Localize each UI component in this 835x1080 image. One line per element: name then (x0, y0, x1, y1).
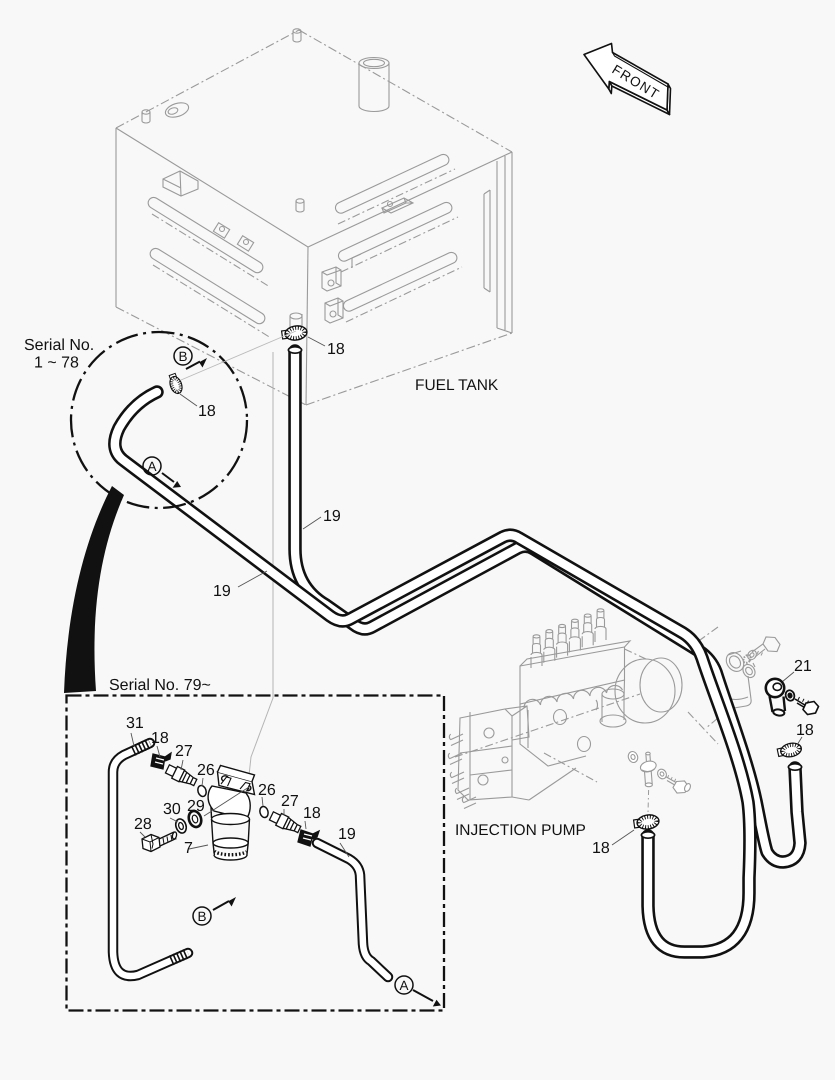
svg-text:26: 26 (197, 762, 215, 779)
svg-text:18: 18 (796, 722, 814, 739)
svg-text:B: B (178, 349, 187, 364)
svg-text:21: 21 (794, 658, 812, 675)
svg-text:19: 19 (338, 826, 356, 843)
svg-text:INJECTION PUMP: INJECTION PUMP (455, 822, 586, 839)
svg-text:27: 27 (175, 743, 193, 760)
svg-text:29: 29 (187, 798, 205, 815)
svg-text:A: A (147, 459, 156, 474)
svg-text:1 ~ 78: 1 ~ 78 (34, 355, 79, 372)
svg-text:FUEL TANK: FUEL TANK (415, 377, 499, 394)
svg-text:B: B (197, 909, 206, 924)
svg-text:A: A (399, 978, 408, 993)
svg-text:18: 18 (151, 730, 169, 747)
svg-text:19: 19 (213, 583, 231, 600)
svg-text:18: 18 (592, 840, 610, 857)
svg-text:18: 18 (327, 341, 345, 358)
svg-text:Serial No.: Serial No. (24, 337, 94, 354)
svg-text:28: 28 (134, 816, 152, 833)
svg-text:30: 30 (163, 801, 181, 818)
svg-text:Serial No. 79~: Serial No. 79~ (109, 677, 211, 694)
svg-text:18: 18 (303, 805, 321, 822)
svg-text:18: 18 (198, 403, 216, 420)
svg-text:27: 27 (281, 793, 299, 810)
svg-text:19: 19 (323, 508, 341, 525)
svg-text:31: 31 (126, 715, 144, 732)
svg-text:26: 26 (258, 782, 276, 799)
